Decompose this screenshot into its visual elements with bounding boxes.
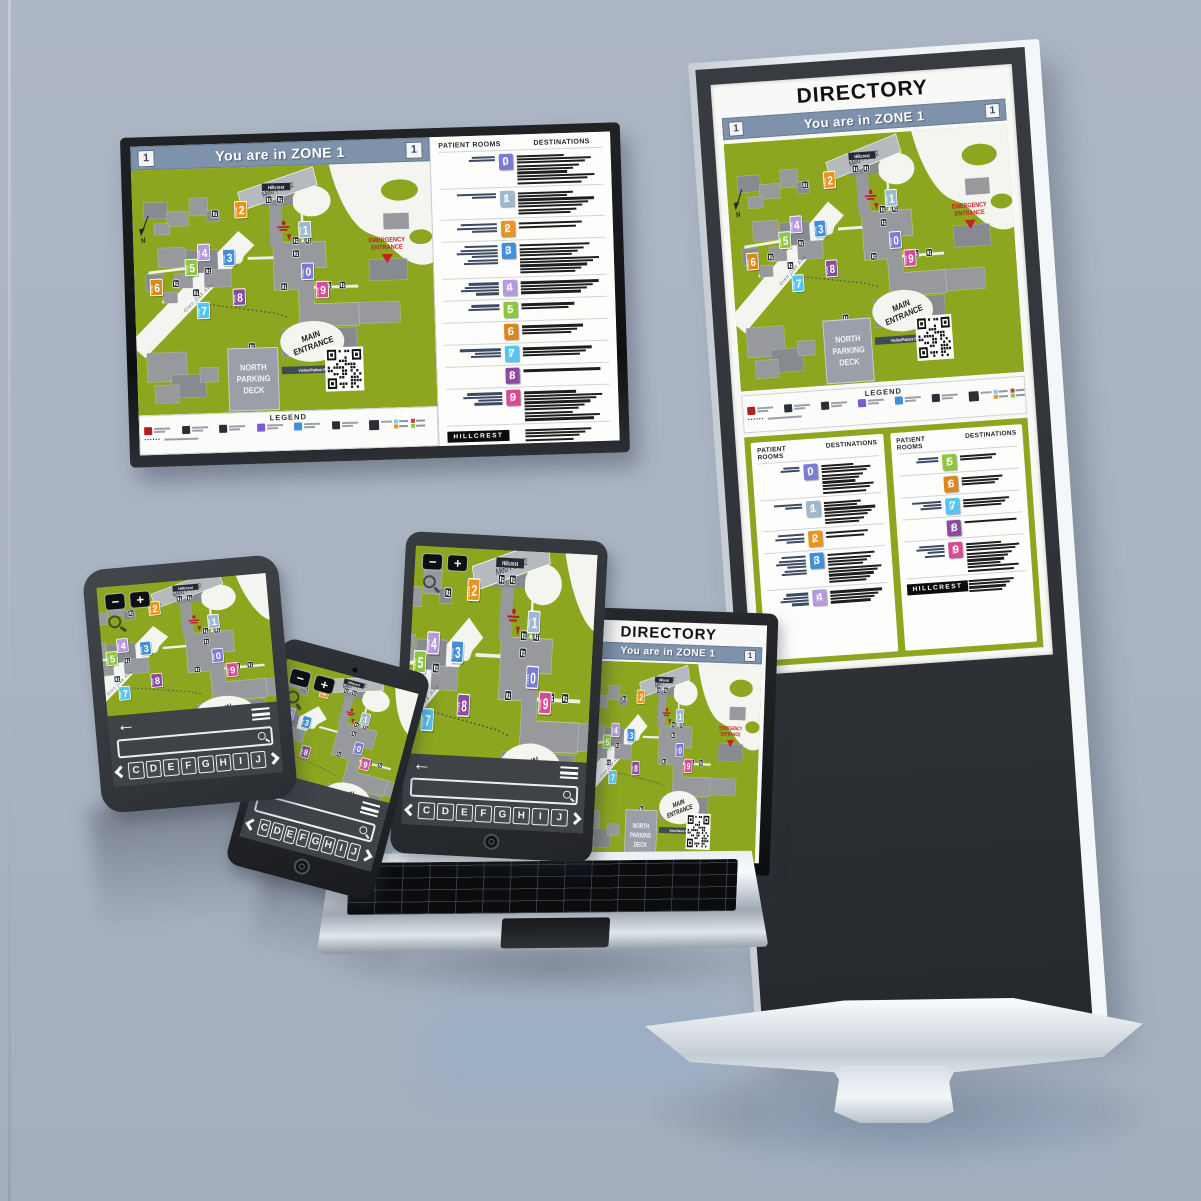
zone-6-badge: ZONE6: [944, 475, 959, 492]
facility-icon: [562, 694, 569, 704]
facility-icon: [498, 574, 505, 584]
facility-icon: [662, 759, 666, 765]
tv-map-pane: 1You are in ZONE 11 Med Park 2HillcrestE…: [130, 137, 440, 455]
svg-text:ZONE: ZONE: [235, 207, 238, 216]
svg-text:ENTRANCE: ENTRANCE: [596, 646, 597, 658]
svg-text:3: 3: [629, 731, 633, 742]
svg-text:8: 8: [829, 263, 835, 276]
building: [383, 213, 409, 230]
facility-icon: [509, 575, 516, 585]
svg-text:ZONE: ZONE: [223, 255, 226, 264]
legend-item: [144, 427, 170, 436]
legend-item: [784, 403, 810, 413]
kiosk-poster: DIRECTORY 1You are in ZONE 11 Med Park 2…: [710, 64, 1053, 676]
svg-text:ZONE: ZONE: [151, 285, 154, 294]
facility-icon: [615, 742, 619, 748]
building: [737, 175, 761, 193]
hillcrest-logo: HILLCREST: [447, 429, 509, 442]
back-button[interactable]: ←: [116, 716, 136, 736]
scroll-right-icon[interactable]: [569, 812, 582, 825]
svg-text:2: 2: [471, 581, 478, 599]
svg-text:2: 2: [152, 604, 158, 616]
camera-dot: [351, 667, 357, 673]
map-zone-9-marker: ZONE9: [684, 759, 693, 774]
facility-icon: [798, 239, 805, 247]
zone-bar-text: You are in ZONE 1: [594, 644, 742, 660]
svg-text:ZONE: ZONE: [451, 648, 455, 659]
facility-icon: [293, 250, 300, 258]
map-zone-1-marker: ZONE1: [527, 611, 541, 635]
facility-icon: [657, 687, 661, 693]
building: [592, 668, 598, 698]
patient-rooms-header: PATIENT ROOMS: [757, 444, 805, 461]
campus-map: Med Park 2HillcrestEMERGENCYENTRANCENORT…: [131, 161, 438, 415]
zone-7-badge: ZONE7: [504, 346, 518, 362]
key-F[interactable]: F: [474, 805, 492, 823]
svg-text:7: 7: [122, 689, 128, 701]
facility-icon: [277, 196, 284, 204]
scroll-right-icon[interactable]: [360, 849, 372, 861]
facility-icon: [202, 628, 208, 635]
svg-text:0: 0: [305, 266, 311, 279]
legend-item: [257, 423, 283, 432]
svg-text:0: 0: [893, 234, 899, 247]
building: [96, 679, 101, 690]
map-zone-2-marker: ZONE2: [823, 171, 837, 190]
zone-badge: 1: [984, 102, 1000, 118]
key-D[interactable]: D: [145, 760, 162, 778]
map-zone-1-marker: ZONE1: [207, 614, 220, 630]
building: [96, 642, 106, 660]
svg-text:5: 5: [605, 737, 609, 748]
facility-icon: [672, 722, 676, 728]
laptop-trackpad[interactable]: [501, 917, 611, 948]
svg-text:ZONE: ZONE: [528, 618, 532, 629]
facility-icon: [281, 283, 288, 291]
legend-icon: [858, 399, 867, 408]
legend-icon: [894, 396, 903, 405]
map-zone-4-marker: ZONE4: [427, 632, 441, 656]
legend-color-chip: [411, 418, 425, 422]
legend-item: [219, 424, 245, 433]
svg-text:NORTH: NORTH: [240, 362, 267, 372]
svg-text:PARKING: PARKING: [630, 832, 652, 840]
map-zone-7-marker: ZONE7: [421, 708, 435, 732]
map-zone-4-marker: ZONE4: [611, 723, 620, 738]
facility-icon: [671, 732, 675, 738]
zone-1-badge: ZONE1: [500, 190, 514, 206]
emergency-entrance-label: EMERGENCYENTRANCE: [272, 621, 277, 645]
map-zone-2-marker: ZONE2: [467, 579, 481, 603]
legend-color-chip: [394, 419, 408, 423]
scroll-left-icon[interactable]: [404, 804, 417, 817]
building: [189, 198, 208, 217]
map-zone-0-marker: ZONE0: [526, 666, 540, 690]
zoom-out-button[interactable]: −: [422, 553, 444, 571]
facility-icon: [176, 595, 182, 602]
map-zone-2-marker: ZONE2: [637, 690, 646, 705]
zone-badge: 1: [405, 141, 423, 159]
directory-row-zone-3: ZONE3: [441, 236, 606, 278]
svg-text:3: 3: [818, 223, 824, 236]
svg-text:EMERGENCY: EMERGENCY: [594, 637, 597, 650]
map-zone-6-marker: ZONE6: [150, 279, 164, 297]
facility-icon: [339, 281, 346, 289]
svg-text:ENTRANCE: ENTRANCE: [371, 243, 403, 251]
svg-text:NORTH: NORTH: [835, 333, 861, 345]
svg-text:ENTRANCE: ENTRANCE: [721, 731, 741, 738]
svg-text:9: 9: [542, 695, 549, 713]
facility-icon: [186, 595, 192, 602]
map-zone-1-marker: ZONE1: [885, 189, 899, 208]
legend-item-places: [369, 418, 425, 430]
svg-text:9: 9: [908, 252, 914, 265]
map-zone-7-marker: ZONE7: [792, 274, 806, 293]
search-icon: [358, 825, 368, 835]
legend-item: [332, 421, 358, 430]
facility-icon: [205, 267, 212, 275]
key-H[interactable]: H: [215, 754, 232, 772]
svg-text:PARKING: PARKING: [237, 374, 271, 385]
svg-text:1: 1: [303, 225, 309, 238]
svg-text:2: 2: [239, 205, 245, 218]
legend-icon: [784, 404, 793, 413]
emergency-entrance-label: EMERGENCYENTRANCE: [593, 637, 598, 675]
scroll-left-icon[interactable]: [115, 766, 128, 779]
zone-0-badge: ZONE0: [498, 153, 512, 169]
svg-text:2: 2: [639, 692, 643, 703]
key-I[interactable]: I: [232, 752, 249, 770]
map-zone-4-marker: ZONE4: [116, 638, 129, 654]
map-zone-3-marker: ZONE3: [222, 249, 236, 267]
legend-item: [894, 395, 920, 405]
key-C[interactable]: C: [418, 802, 436, 820]
legend-icon: [294, 422, 302, 430]
map-zone-8-marker: ZONE8: [457, 694, 471, 718]
zoom-in-button[interactable]: +: [129, 590, 151, 609]
facility-icon: [96, 669, 101, 676]
legend-icon: [747, 407, 756, 416]
map-zone-3-marker: ZONE3: [139, 641, 152, 657]
svg-text:DECK: DECK: [243, 385, 265, 395]
map-zone-9-marker: ZONE9: [316, 281, 330, 299]
legend-color-chip: [394, 424, 408, 428]
facility-icon: [520, 631, 527, 641]
key-J[interactable]: J: [250, 751, 267, 769]
map-zone-8-marker: ZONE8: [233, 289, 247, 307]
svg-text:0: 0: [215, 651, 221, 663]
campus-map: Med Park 2HillcrestEMERGENCYENTRANCENORT…: [724, 124, 1025, 391]
laptop-keyboard[interactable]: [346, 859, 737, 915]
svg-text:9: 9: [230, 665, 236, 677]
facility-icon: [871, 252, 878, 260]
key-H[interactable]: H: [512, 807, 530, 825]
map-zone-8-marker: ZONE8: [825, 260, 839, 279]
legend-color-chip: [1010, 393, 1024, 398]
svg-text:NORTH: NORTH: [632, 823, 649, 831]
facility-icon: [247, 661, 253, 668]
map-zone-0-marker: ZONE0: [676, 743, 685, 758]
svg-text:5: 5: [189, 262, 195, 275]
facility-icon: [768, 253, 775, 261]
smartphone-left: Med Park 2HillcrestEMERGENCYENTRANCENORT…: [82, 554, 299, 814]
zone-9-badge: ZONE9: [948, 541, 963, 558]
building: [369, 258, 408, 280]
hillcrest-map-label: Hillcrest: [262, 183, 291, 191]
legend-item: [821, 400, 847, 410]
phone-screen: Med Park 2HillcrestEMERGENCYENTRANCENORT…: [96, 573, 283, 787]
svg-text:5: 5: [782, 235, 788, 248]
facility-icon: [664, 687, 668, 693]
svg-text:9: 9: [687, 761, 691, 772]
key-J[interactable]: J: [346, 842, 361, 861]
legend-icon: [821, 401, 830, 410]
svg-text:ZONE: ZONE: [413, 658, 417, 669]
kiosk-base-foot: [834, 1065, 954, 1124]
key-F[interactable]: F: [180, 757, 197, 775]
wall-corner-line: [8, 0, 11, 1201]
legend-item: [931, 392, 957, 402]
menu-icon[interactable]: [251, 707, 270, 721]
legend-icon: [257, 424, 265, 432]
svg-text:1: 1: [678, 712, 682, 723]
zone-0-badge: ZONE0: [803, 463, 818, 480]
facility-icon: [622, 696, 626, 702]
map-zone-3-marker: ZONE3: [814, 220, 828, 239]
legend-icon: [144, 427, 152, 435]
legend-icon: [219, 425, 227, 433]
svg-text:ZONE: ZONE: [302, 268, 305, 277]
svg-text:6: 6: [154, 282, 160, 295]
svg-text:ZONE: ZONE: [299, 227, 302, 236]
building: [729, 707, 746, 721]
legend-icon: [369, 420, 379, 430]
zone-4-badge: ZONE4: [502, 280, 516, 296]
svg-text:2: 2: [827, 174, 833, 187]
map-zone-5-marker: ZONE5: [603, 735, 612, 750]
hillcrest-map-label: Hillcrest: [655, 677, 673, 684]
building: [797, 340, 816, 356]
map-legend: LEGEND••••••: [139, 406, 439, 455]
directory-list-zones-5-9: PATIENT ROOMSDESTINATIONSZONE5ZONE6ZONE7…: [890, 424, 1037, 651]
svg-text:7: 7: [796, 278, 802, 291]
map-zone-0-marker: ZONE0: [212, 648, 225, 664]
svg-text:1: 1: [889, 192, 895, 205]
svg-text:8: 8: [634, 763, 638, 774]
svg-text:ZONE: ZONE: [467, 586, 471, 597]
tv-screen: 1You are in ZONE 11 Med Park 2HillcrestE…: [130, 132, 619, 456]
svg-text:3: 3: [143, 644, 149, 656]
legend-icon: [931, 394, 940, 403]
facility-icon: [292, 237, 299, 245]
svg-text:3: 3: [226, 252, 232, 265]
facility-icon: [879, 205, 886, 213]
building: [748, 196, 764, 209]
hillcrest-logo: HILLCREST: [906, 580, 969, 595]
svg-text:Hillcrest: Hillcrest: [502, 560, 518, 568]
wall-mounted-display: 1You are in ZONE 11 Med Park 2HillcrestE…: [120, 122, 630, 468]
zone-5-badge: ZONE5: [503, 302, 517, 318]
map-zone-2-marker: ZONE2: [235, 201, 249, 219]
building: [965, 177, 990, 195]
map-zone-5-marker: ZONE5: [779, 231, 793, 250]
zone-badge: 1: [137, 149, 155, 167]
search-icon: [257, 732, 266, 741]
map-zone-4-marker: ZONE4: [790, 216, 804, 235]
facility-icon: [852, 165, 859, 173]
legend-icon: [182, 426, 190, 434]
zone-1-badge: ZONE1: [806, 500, 821, 517]
building: [158, 247, 186, 267]
zone-6-badge: ZONE6: [504, 324, 518, 340]
facility-icon: [505, 691, 512, 701]
building: [154, 223, 170, 235]
facility-icon: [212, 210, 219, 218]
map-zone-7-marker: ZONE7: [197, 302, 211, 320]
map-zone-6-marker: ZONE6: [746, 253, 760, 272]
zone-5-badge: ZONE5: [942, 453, 957, 470]
key-D[interactable]: D: [436, 803, 454, 821]
building: [163, 292, 178, 304]
svg-text:7: 7: [201, 305, 207, 318]
svg-text:EMERGENCY: EMERGENCY: [272, 621, 277, 630]
zone-3-badge: ZONE3: [809, 552, 824, 569]
map-zone-5-marker: ZONE5: [106, 651, 119, 667]
facility-icon: [203, 638, 209, 645]
legend-item: [182, 425, 208, 434]
home-button[interactable]: [483, 833, 500, 850]
tablet-screen: Med Park 2HillcrestEMERGENCYENTRANCENORT…: [401, 545, 597, 833]
svg-text:ZONE: ZONE: [198, 308, 201, 317]
legend-color-chip: [411, 423, 425, 427]
legend-item: [858, 398, 884, 408]
legend-icon: [968, 391, 979, 402]
map-zone-8-marker: ZONE8: [151, 673, 164, 689]
magnifier-icon[interactable]: [423, 575, 437, 589]
svg-text:7: 7: [425, 711, 432, 729]
building: [755, 359, 779, 379]
kiosk-directory-section: PATIENT ROOMSDESTINATIONSZONE0ZONE1ZONE2…: [744, 418, 1043, 667]
map-zone-1-marker: ZONE1: [299, 221, 313, 239]
search-icon: [563, 790, 571, 798]
facility-icon: [926, 249, 933, 257]
tv-directory-pane: PATIENT ROOMSDESTINATIONSZONE0ZONE1ZONE2…: [430, 132, 620, 447]
directory-row-zone-9: ZONE9: [446, 383, 611, 425]
map-zone-4-marker: ZONE4: [197, 244, 211, 262]
key-E[interactable]: E: [162, 758, 179, 776]
svg-text:0: 0: [530, 669, 537, 687]
svg-text:0: 0: [678, 746, 682, 757]
svg-text:9: 9: [320, 284, 326, 297]
svg-text:4: 4: [614, 725, 618, 736]
svg-text:8: 8: [461, 697, 468, 715]
home-button[interactable]: [292, 857, 312, 877]
back-button[interactable]: ←: [412, 756, 432, 775]
facility-icon: [173, 280, 180, 288]
zone-7-badge: ZONE7: [945, 497, 960, 514]
svg-text:ZONE: ZONE: [427, 639, 431, 650]
map-zone-5-marker: ZONE5: [185, 259, 199, 277]
hillcrest-map-label: Hillcrest: [496, 557, 524, 568]
facility-icon: [699, 760, 703, 766]
qr-code: [685, 813, 710, 850]
facility-icon: [519, 648, 526, 658]
svg-text:6: 6: [750, 256, 756, 269]
svg-text:ZONE: ZONE: [526, 673, 530, 684]
map-zone-7-marker: ZONE7: [608, 770, 617, 785]
building: [405, 586, 422, 607]
zone-8-badge: ZONE8: [947, 519, 962, 536]
svg-text:Hillcrest: Hillcrest: [659, 678, 670, 683]
map-zone-9-marker: ZONE9: [538, 692, 552, 716]
svg-text:DECK: DECK: [634, 842, 648, 850]
zone-9-badge: ZONE9: [506, 390, 520, 406]
zone-2-badge: ZONE2: [500, 221, 514, 237]
map-zone-0-marker: ZONE0: [301, 263, 315, 281]
key-J[interactable]: J: [550, 809, 568, 827]
map-zone-0-marker: ZONE0: [889, 231, 903, 250]
building: [143, 202, 168, 219]
zoom-out-button[interactable]: −: [104, 592, 126, 611]
building: [759, 265, 773, 277]
menu-icon[interactable]: [560, 766, 579, 779]
map-zone-3-marker: ZONE3: [627, 728, 636, 743]
kiosk-base: [645, 998, 1143, 1126]
directory-list: PATIENT ROOMSDESTINATIONSZONE0ZONE1ZONE2…: [438, 138, 611, 446]
key-E[interactable]: E: [455, 804, 473, 822]
legend-item: [294, 422, 320, 431]
map-zone-7-marker: ZONE7: [119, 686, 132, 702]
facility-icon: [194, 666, 200, 673]
directory-footer: HILLCREST: [447, 421, 612, 446]
building: [273, 639, 277, 659]
zone-4-badge: ZONE4: [812, 589, 827, 606]
svg-text:ZONE: ZONE: [234, 294, 237, 303]
zoom-in-button[interactable]: +: [447, 554, 469, 572]
legend-icon: [332, 421, 340, 429]
svg-text:ENTRANCE: ENTRANCE: [274, 628, 276, 637]
north-parking-deck: NORTHPARKINGDECK: [823, 318, 875, 384]
zone-badge: 1: [728, 120, 744, 136]
scroll-right-icon[interactable]: [267, 752, 280, 765]
map-zone-3-marker: ZONE3: [451, 641, 465, 665]
facility-icon: [880, 219, 887, 227]
menu-icon[interactable]: [360, 801, 380, 817]
north-parking-deck: NORTHPARKINGDECK: [228, 347, 280, 411]
scroll-left-icon[interactable]: [245, 818, 257, 830]
svg-text:ZONE: ZONE: [317, 287, 320, 296]
zone-3-badge: ZONE3: [501, 243, 515, 259]
map-zone-8-marker: ZONE8: [632, 761, 641, 776]
magnifier-icon[interactable]: [108, 615, 122, 629]
directory-row-zone-0: ZONE0: [439, 147, 604, 189]
key-I[interactable]: I: [531, 808, 549, 826]
svg-text:5: 5: [417, 653, 424, 671]
zone-2-badge: ZONE2: [808, 530, 823, 547]
zone-badge: 1: [744, 649, 756, 661]
facility-icon: [432, 663, 439, 673]
legend-color-chip: [993, 394, 1007, 399]
key-C[interactable]: C: [128, 761, 145, 779]
key-G[interactable]: G: [197, 755, 214, 773]
svg-text:1: 1: [531, 614, 538, 632]
key-G[interactable]: G: [493, 806, 511, 824]
building: [200, 367, 219, 382]
qr-code: [325, 346, 365, 391]
map-zone-9-marker: ZONE9: [904, 249, 918, 268]
zone-8-badge: ZONE8: [505, 368, 519, 384]
svg-text:ZONE: ZONE: [186, 265, 189, 274]
